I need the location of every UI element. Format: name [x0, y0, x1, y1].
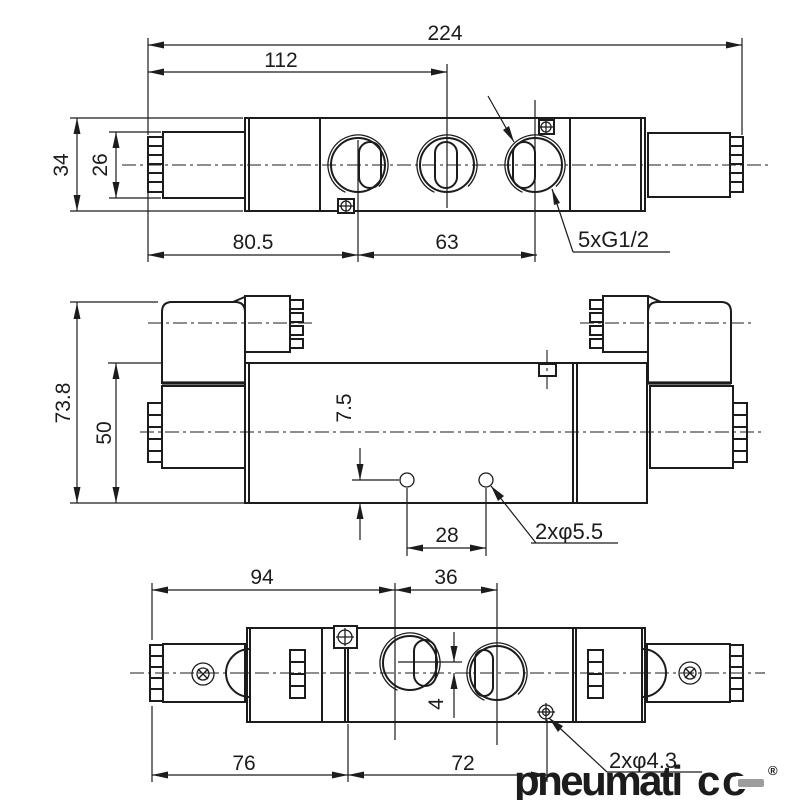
- mounting-hole-right: [479, 473, 493, 487]
- dim-80-5: 80.5: [233, 231, 274, 254]
- bottom-view-dimensions: 94 36 76 72 4 2xφ4.3: [152, 566, 702, 782]
- right-pilot-coil: [580, 296, 755, 383]
- mounting-hole-left: [400, 473, 414, 487]
- left-solenoid-housing: [162, 386, 245, 468]
- top-view: [122, 118, 770, 214]
- top-view-dimensions: 224 112 34 26 80.5 63 5xG1/2: [50, 22, 742, 262]
- port-a: [370, 623, 450, 703]
- left-pilot-coil: [148, 296, 315, 383]
- dim-112: 112: [264, 49, 297, 72]
- left-housing-screw: [192, 663, 214, 685]
- dim-34: 34: [50, 153, 73, 177]
- left-cap: [148, 137, 163, 192]
- right-solenoid-housing: [650, 386, 733, 468]
- logo-text-c: c: [697, 757, 720, 800]
- override-screw-bottom: [338, 198, 354, 214]
- top-boss-screw: [334, 626, 357, 648]
- dim-76: 76: [232, 752, 255, 775]
- side-view-dimensions: 73.8 50 7.5 28 2xφ5.5: [52, 302, 618, 556]
- left-din-connector: [290, 650, 305, 698]
- dim-50: 50: [93, 421, 116, 444]
- dim-72: 72: [451, 752, 474, 775]
- hole-4-3: [537, 703, 555, 721]
- body-side: [245, 363, 647, 503]
- dim-28: 28: [435, 524, 458, 547]
- logo-registered-mark: ®: [768, 763, 778, 778]
- valve-technical-drawing: pneumati c o ®: [0, 0, 800, 800]
- label-2xphi4-3: 2xφ4.3: [609, 748, 677, 773]
- logo-o-dash: [738, 779, 764, 787]
- right-din-connector: [588, 650, 603, 698]
- dim-4: 4: [425, 698, 448, 710]
- dim-36: 36: [434, 566, 457, 589]
- dim-26: 26: [89, 153, 112, 176]
- label-5xG12: 5xG1/2: [578, 227, 649, 252]
- dim-73-8: 73.8: [52, 383, 75, 424]
- label-2xphi5-5: 2xφ5.5: [535, 519, 603, 544]
- side-view: [140, 296, 765, 503]
- dim-224: 224: [427, 22, 462, 45]
- dim-94: 94: [250, 566, 274, 589]
- override-screw-top: [538, 119, 554, 135]
- dim-7-5: 7.5: [333, 393, 356, 422]
- dim-63: 63: [435, 231, 458, 254]
- right-cap: [730, 137, 743, 192]
- drawing-canvas: pneumati c o ®: [0, 0, 800, 800]
